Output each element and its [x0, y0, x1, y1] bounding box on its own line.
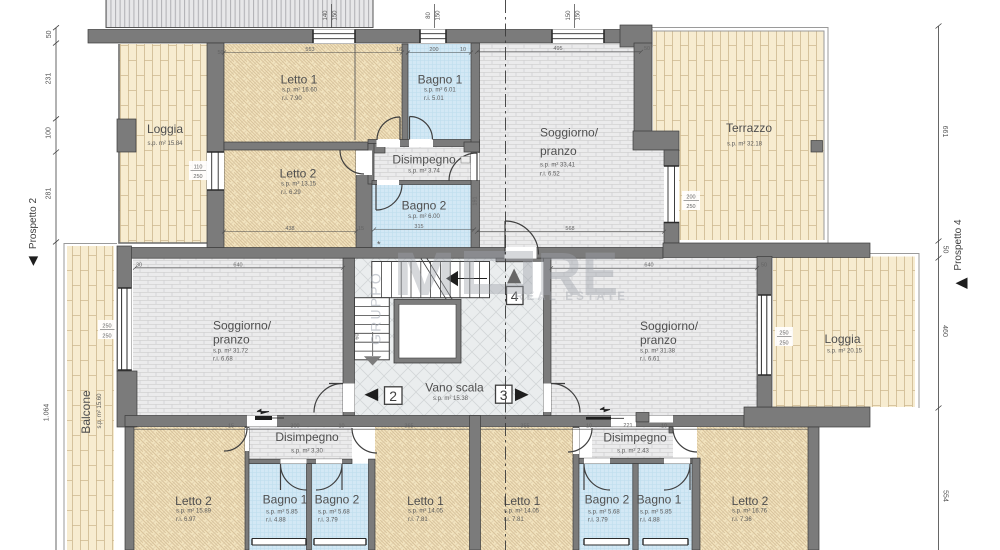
- svg-text:s.p. m² 13.15: s.p. m² 13.15: [281, 182, 317, 188]
- svg-text:250: 250: [102, 324, 111, 330]
- svg-text:r.i. 6.97: r.i. 6.97: [176, 517, 196, 523]
- svg-text:150: 150: [333, 10, 339, 21]
- svg-text:s.p. m² 14.05: s.p. m² 14.05: [408, 509, 444, 515]
- svg-text:r.i. 3.79: r.i. 3.79: [318, 518, 338, 524]
- svg-text:640: 640: [644, 263, 653, 269]
- svg-text:200: 200: [686, 195, 695, 201]
- svg-text:Vano scala: Vano scala: [425, 381, 484, 395]
- svg-text:10: 10: [338, 424, 344, 430]
- svg-text:s.p. m² 15.84: s.p. m² 15.84: [147, 141, 183, 147]
- svg-text:Prospetto 4: Prospetto 4: [953, 219, 964, 271]
- svg-text:Bagno 2: Bagno 2: [315, 493, 360, 507]
- svg-text:s.p. m² 3.30: s.p. m² 3.30: [291, 449, 323, 455]
- svg-text:s.p. m² 16.76: s.p. m² 16.76: [732, 509, 768, 515]
- svg-text:Letto 1: Letto 1: [407, 494, 444, 508]
- svg-text:Soggiorno/: Soggiorno/: [213, 319, 272, 333]
- svg-text:1.064: 1.064: [44, 404, 51, 422]
- svg-text:Loggia: Loggia: [824, 332, 860, 346]
- svg-text:10: 10: [586, 424, 592, 430]
- svg-text:s.p. m² 14.05: s.p. m² 14.05: [504, 509, 540, 515]
- svg-text:Letto 2: Letto 2: [280, 167, 317, 181]
- svg-text:GRUPPO: GRUPPO: [368, 271, 384, 345]
- svg-text:355: 355: [520, 424, 529, 430]
- svg-text:568: 568: [565, 226, 574, 232]
- svg-text:250: 250: [779, 341, 788, 347]
- svg-text:60: 60: [355, 333, 361, 339]
- svg-text:640: 640: [233, 262, 242, 268]
- svg-text:Balcone: Balcone: [79, 390, 93, 434]
- svg-text:460: 460: [941, 325, 948, 337]
- svg-text:Soggiorno/: Soggiorno/: [540, 126, 599, 140]
- svg-text:s.p. m² 2.43: s.p. m² 2.43: [617, 449, 649, 455]
- svg-text:s.p. m² 6.01: s.p. m² 6.01: [424, 88, 456, 94]
- svg-text:r.i. 7.81: r.i. 7.81: [408, 517, 428, 523]
- svg-text:r.i. 3.79: r.i. 3.79: [588, 518, 608, 524]
- svg-text:16: 16: [396, 47, 402, 53]
- svg-text:*: *: [377, 240, 381, 250]
- svg-text:Disimpegno: Disimpegno: [392, 153, 456, 167]
- svg-text:250: 250: [779, 331, 788, 337]
- svg-text:250: 250: [686, 204, 695, 210]
- svg-text:s.p. m² 15.60: s.p. m² 15.60: [97, 393, 103, 429]
- svg-text:Letto 1: Letto 1: [281, 73, 318, 87]
- svg-text:281: 281: [46, 188, 53, 200]
- svg-text:30: 30: [136, 262, 142, 268]
- svg-text:r.i. 5.01: r.i. 5.01: [424, 96, 444, 102]
- svg-text:231: 231: [46, 73, 53, 85]
- svg-text:Soggiorno/: Soggiorno/: [640, 319, 699, 333]
- svg-text:110: 110: [194, 165, 203, 171]
- svg-text:191: 191: [473, 196, 479, 205]
- svg-text:s.p. m² 31.72: s.p. m² 31.72: [213, 349, 249, 355]
- svg-text:Loggia: Loggia: [147, 122, 183, 136]
- svg-text:315: 315: [414, 224, 423, 230]
- svg-text:r.i. 7.90: r.i. 7.90: [282, 96, 302, 102]
- svg-text:pranzo: pranzo: [640, 333, 677, 347]
- svg-text:REAL ESTATE: REAL ESTATE: [515, 291, 628, 303]
- svg-text:s.p. m² 20.15: s.p. m² 20.15: [827, 349, 863, 355]
- svg-text:Bagno 1: Bagno 1: [418, 73, 463, 87]
- svg-text:50: 50: [644, 46, 650, 52]
- svg-text:s.p. m² 15.89: s.p. m² 15.89: [176, 509, 212, 515]
- svg-text:495: 495: [553, 46, 562, 52]
- svg-text:2: 2: [389, 388, 397, 404]
- svg-text:553: 553: [305, 47, 314, 53]
- svg-text:661: 661: [941, 126, 948, 138]
- svg-text:150: 150: [566, 10, 572, 21]
- svg-text:150: 150: [576, 10, 582, 21]
- svg-text:3: 3: [500, 387, 508, 403]
- svg-text:s.p. m² 5.68: s.p. m² 5.68: [318, 509, 350, 515]
- svg-text:10: 10: [661, 424, 667, 430]
- svg-text:50: 50: [218, 50, 224, 56]
- svg-text:s.p. m² 3.74: s.p. m² 3.74: [408, 169, 440, 175]
- svg-text:r.i. 6.52: r.i. 6.52: [540, 172, 560, 178]
- svg-text:Disimpegno: Disimpegno: [603, 431, 667, 445]
- svg-text:10: 10: [460, 47, 466, 53]
- svg-text:15: 15: [358, 226, 364, 232]
- svg-text:80: 80: [426, 12, 432, 19]
- svg-text:Bagno 1: Bagno 1: [637, 493, 682, 507]
- svg-text:r.i. 4.88: r.i. 4.88: [640, 518, 660, 524]
- svg-text:M: M: [393, 240, 456, 308]
- svg-text:50: 50: [942, 246, 949, 254]
- svg-text:250: 250: [193, 174, 202, 180]
- svg-text:Letto 1: Letto 1: [504, 494, 541, 508]
- svg-text:r.i. 7.81: r.i. 7.81: [504, 517, 524, 523]
- svg-text:100: 100: [46, 127, 53, 139]
- svg-text:pranzo: pranzo: [540, 144, 577, 158]
- svg-text:Bagno 1: Bagno 1: [263, 493, 308, 507]
- svg-text:r.i. 4.88: r.i. 4.88: [266, 518, 286, 524]
- svg-text:150: 150: [436, 10, 442, 21]
- svg-text:s.p. m² 5.68: s.p. m² 5.68: [588, 509, 620, 515]
- svg-text:s.p. m² 32.18: s.p. m² 32.18: [727, 142, 763, 148]
- svg-text:s.p. m² 31.38: s.p. m² 31.38: [640, 349, 676, 355]
- svg-text:s.p. m² 5.85: s.p. m² 5.85: [266, 509, 298, 515]
- svg-text:438: 438: [285, 226, 294, 232]
- svg-text:r.i. 6.61: r.i. 6.61: [640, 357, 660, 363]
- svg-text:Bagno 2: Bagno 2: [585, 493, 630, 507]
- svg-text:140: 140: [323, 10, 329, 21]
- svg-text:s.p. m² 15.38: s.p. m² 15.38: [433, 396, 469, 402]
- svg-text:365: 365: [404, 424, 413, 430]
- svg-text:15: 15: [228, 424, 234, 430]
- svg-text:250: 250: [102, 334, 111, 340]
- svg-text:200: 200: [429, 47, 438, 53]
- svg-text:s.p. m² 6.00: s.p. m² 6.00: [408, 214, 440, 220]
- svg-text:r.i. 7.36: r.i. 7.36: [732, 517, 752, 523]
- svg-text:s.p. m² 16.60: s.p. m² 16.60: [282, 88, 318, 94]
- svg-text:Letto 2: Letto 2: [732, 494, 769, 508]
- svg-text:r.i. 6.68: r.i. 6.68: [213, 357, 233, 363]
- svg-text:554: 554: [942, 490, 949, 502]
- svg-text:50: 50: [46, 30, 53, 38]
- svg-text:Prospetto 2: Prospetto 2: [28, 197, 39, 249]
- svg-text:s.p. m² 5.85: s.p. m² 5.85: [640, 509, 672, 515]
- svg-text:Bagno 2: Bagno 2: [402, 199, 447, 213]
- svg-text:221: 221: [623, 423, 632, 429]
- svg-text:r.i. 6.29: r.i. 6.29: [281, 190, 301, 196]
- svg-text:pranzo: pranzo: [213, 333, 250, 347]
- svg-text:300: 300: [290, 424, 299, 430]
- svg-text:50: 50: [761, 263, 767, 269]
- svg-text:Letto 2: Letto 2: [175, 494, 212, 508]
- svg-text:s.p. m² 33,41: s.p. m² 33,41: [540, 163, 576, 169]
- svg-text:Terrazzo: Terrazzo: [726, 121, 772, 135]
- svg-text:Disimpegno: Disimpegno: [275, 430, 339, 444]
